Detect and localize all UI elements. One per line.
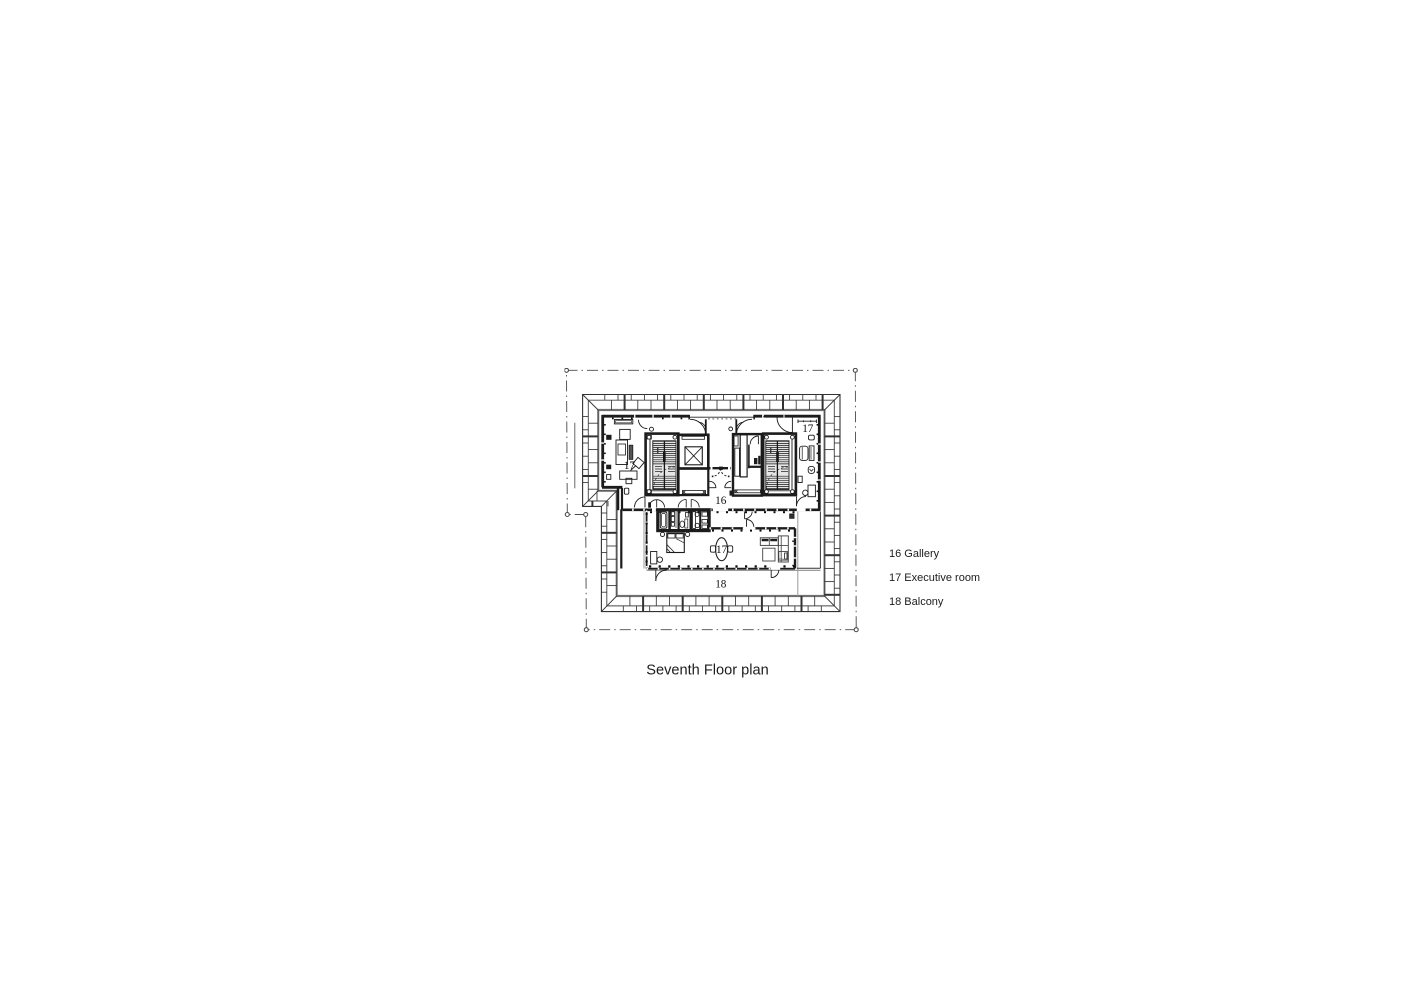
svg-text:17: 17 — [802, 423, 814, 435]
svg-text:18: 18 — [715, 579, 727, 591]
svg-text:16 Gallery: 16 Gallery — [889, 548, 940, 560]
svg-text:17 Executive room: 17 Executive room — [889, 572, 980, 584]
svg-text:16: 16 — [715, 495, 727, 507]
svg-text:18 Balcony: 18 Balcony — [889, 596, 944, 608]
svg-text:17: 17 — [624, 460, 636, 472]
svg-text:Seventh Floor plan: Seventh Floor plan — [646, 663, 769, 679]
svg-text:17: 17 — [716, 544, 728, 556]
